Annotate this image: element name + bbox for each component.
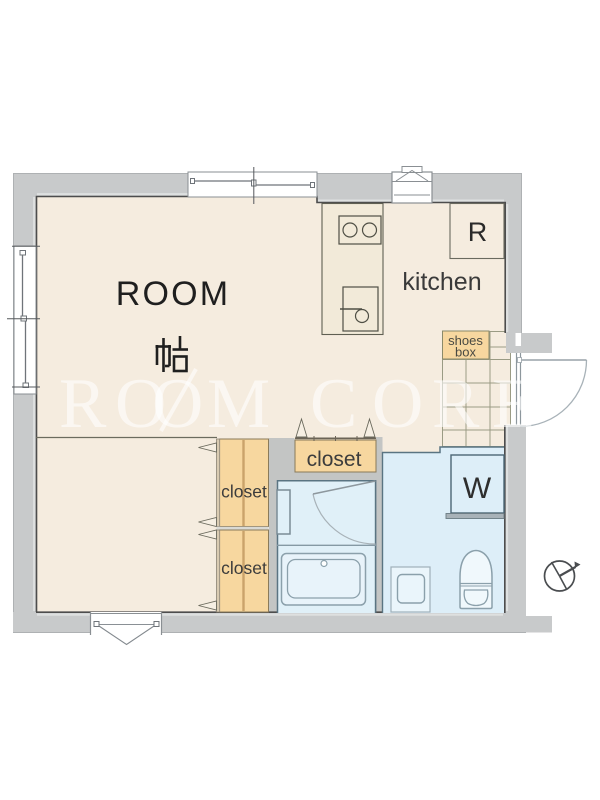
svg-text:ROOM: ROOM	[116, 275, 231, 313]
svg-text:R: R	[468, 217, 488, 247]
svg-text:M: M	[207, 365, 270, 443]
svg-text:C: C	[310, 365, 357, 443]
svg-text:kitchen: kitchen	[402, 268, 481, 296]
svg-text:R: R	[59, 365, 107, 443]
svg-text:E: E	[492, 365, 535, 443]
svg-text:closet: closet	[221, 558, 267, 578]
svg-text:box: box	[455, 345, 476, 360]
svg-text:O: O	[372, 365, 423, 443]
svg-text:closet: closet	[307, 448, 362, 471]
svg-text:closet: closet	[221, 482, 267, 502]
svg-text:W: W	[463, 472, 492, 505]
svg-text:R: R	[432, 365, 480, 443]
